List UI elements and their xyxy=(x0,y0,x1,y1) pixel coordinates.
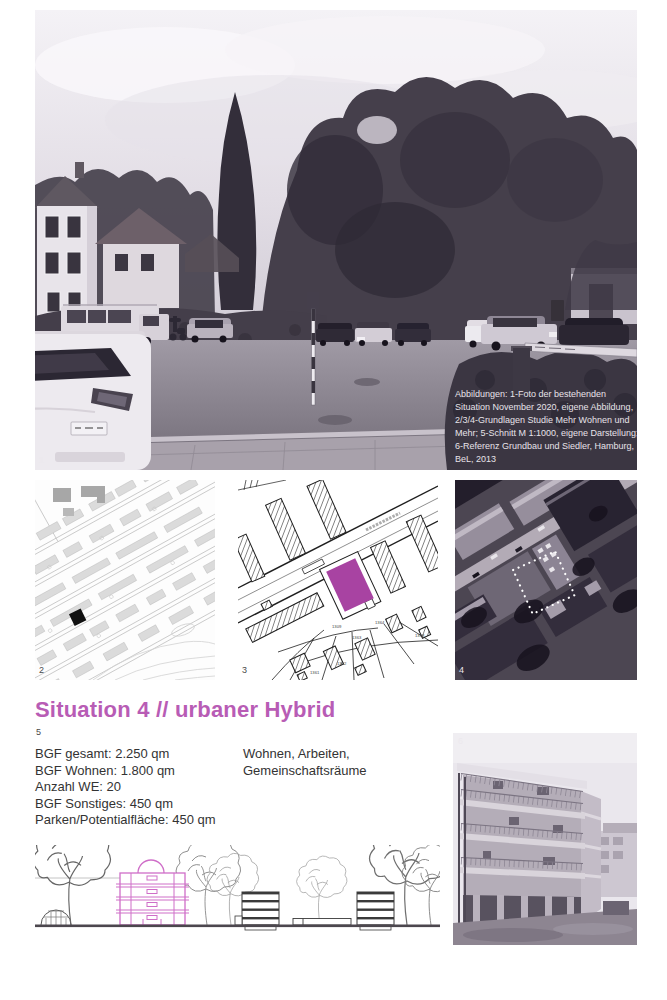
section-tree xyxy=(297,856,347,925)
parcel-number: 1361 xyxy=(310,670,320,675)
city-map-illustration xyxy=(35,480,215,680)
figure-site-photo: Abbildungen: 1-Foto der bestehenden Situ… xyxy=(35,10,637,470)
reference-building xyxy=(457,763,601,929)
figure-city-map: 2 xyxy=(35,480,215,680)
figure-aerial-photo: 4 xyxy=(455,480,637,680)
portfolio-page: Abbildungen: 1-Foto der bestehenden Situ… xyxy=(0,0,667,1000)
caption-line: 6-Referenz Grundbau und Siedler, Hamburg… xyxy=(455,440,637,453)
ground-line xyxy=(35,925,440,928)
low-wall-section xyxy=(293,919,351,926)
manhole xyxy=(318,415,352,425)
caption-line: 2/3/4-Grundlagen Studie Mehr Wohnen und xyxy=(455,414,637,427)
caption-line: Mehr; 5-Schnitt M 1:1000, eigene Darstel… xyxy=(455,427,637,440)
white-suv xyxy=(35,331,151,470)
trash-bin xyxy=(551,300,564,321)
fact-line: BGF gesamt: 2.250 qm xyxy=(35,746,216,763)
figure-reference-photo: 6 xyxy=(453,733,637,945)
new-building-section xyxy=(116,860,189,925)
figure-number-3: 3 xyxy=(242,666,247,675)
caption-line: Situation November 2020, eigene Abbildun… xyxy=(455,401,637,414)
figure-number-5: 5 xyxy=(36,727,41,737)
parcel-number: 1364 xyxy=(375,620,385,625)
figure-site-plan: 1309 1364 1363 1362 1361 1368 3 xyxy=(238,480,438,680)
parcel-number: 1309 xyxy=(332,624,342,629)
use-line: Wohnen, Arbeiten, xyxy=(243,746,367,763)
caption-line: Abbildungen: 1-Foto der bestehenden xyxy=(455,388,637,401)
aerial-photo-illustration xyxy=(455,480,637,680)
fact-line: BGF Sonstiges: 450 qm xyxy=(35,796,216,813)
section-drawing-illustration xyxy=(35,845,440,960)
parcel-number: 1362 xyxy=(337,661,347,666)
section-tree xyxy=(402,845,440,925)
reference-photo-illustration xyxy=(453,733,637,945)
existing-building-section xyxy=(357,892,394,930)
parcel-number: 1363 xyxy=(352,635,362,640)
program-uses: Wohnen, Arbeiten, Gemeinschaftsräume xyxy=(243,746,367,779)
fact-line: Parken/Potentialfläche: 450 qm xyxy=(35,812,216,829)
figure-number-4: 4 xyxy=(459,666,464,675)
figure-captions: Abbildungen: 1-Foto der bestehenden Situ… xyxy=(455,388,637,465)
caption-line: BeL, 2013 xyxy=(455,453,637,466)
fact-line: BGF Wohnen: 1.800 qm xyxy=(35,763,216,780)
figure-number-1: 1 xyxy=(39,456,44,465)
parcel-number: 1368 xyxy=(415,633,425,638)
figure-number-2: 2 xyxy=(39,666,44,675)
use-line: Gemeinschaftsräume xyxy=(243,763,367,780)
dome-structure xyxy=(41,910,71,925)
figure-section-drawing xyxy=(35,845,440,960)
site-plan-illustration: 1309 1364 1363 1362 1361 1368 xyxy=(238,480,438,680)
fact-line: Anzahl WE: 20 xyxy=(35,779,216,796)
project-facts: BGF gesamt: 2.250 qm BGF Wohnen: 1.800 q… xyxy=(35,746,216,829)
figure-number-6: 6 xyxy=(458,737,463,746)
existing-building-section xyxy=(235,892,279,930)
manhole xyxy=(354,378,380,386)
page-title: Situation 4 // urbaner Hybrid xyxy=(35,697,335,723)
